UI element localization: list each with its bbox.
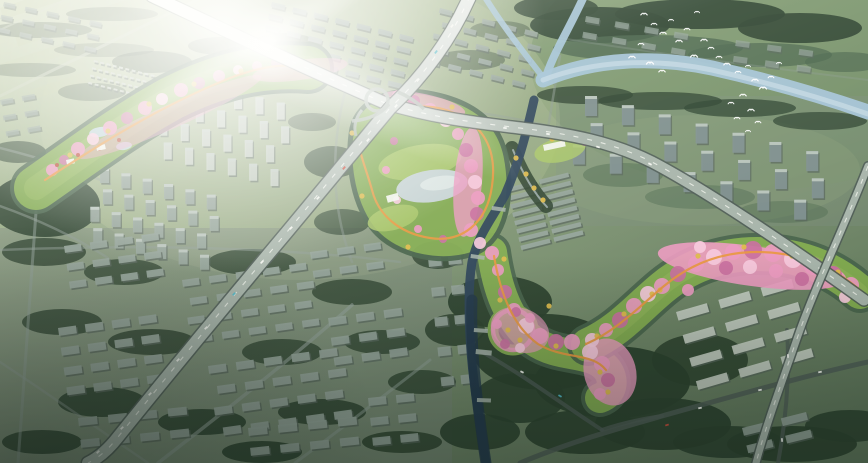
aerial-city-park-rendering <box>0 0 868 463</box>
screenshot-root <box>0 0 868 463</box>
